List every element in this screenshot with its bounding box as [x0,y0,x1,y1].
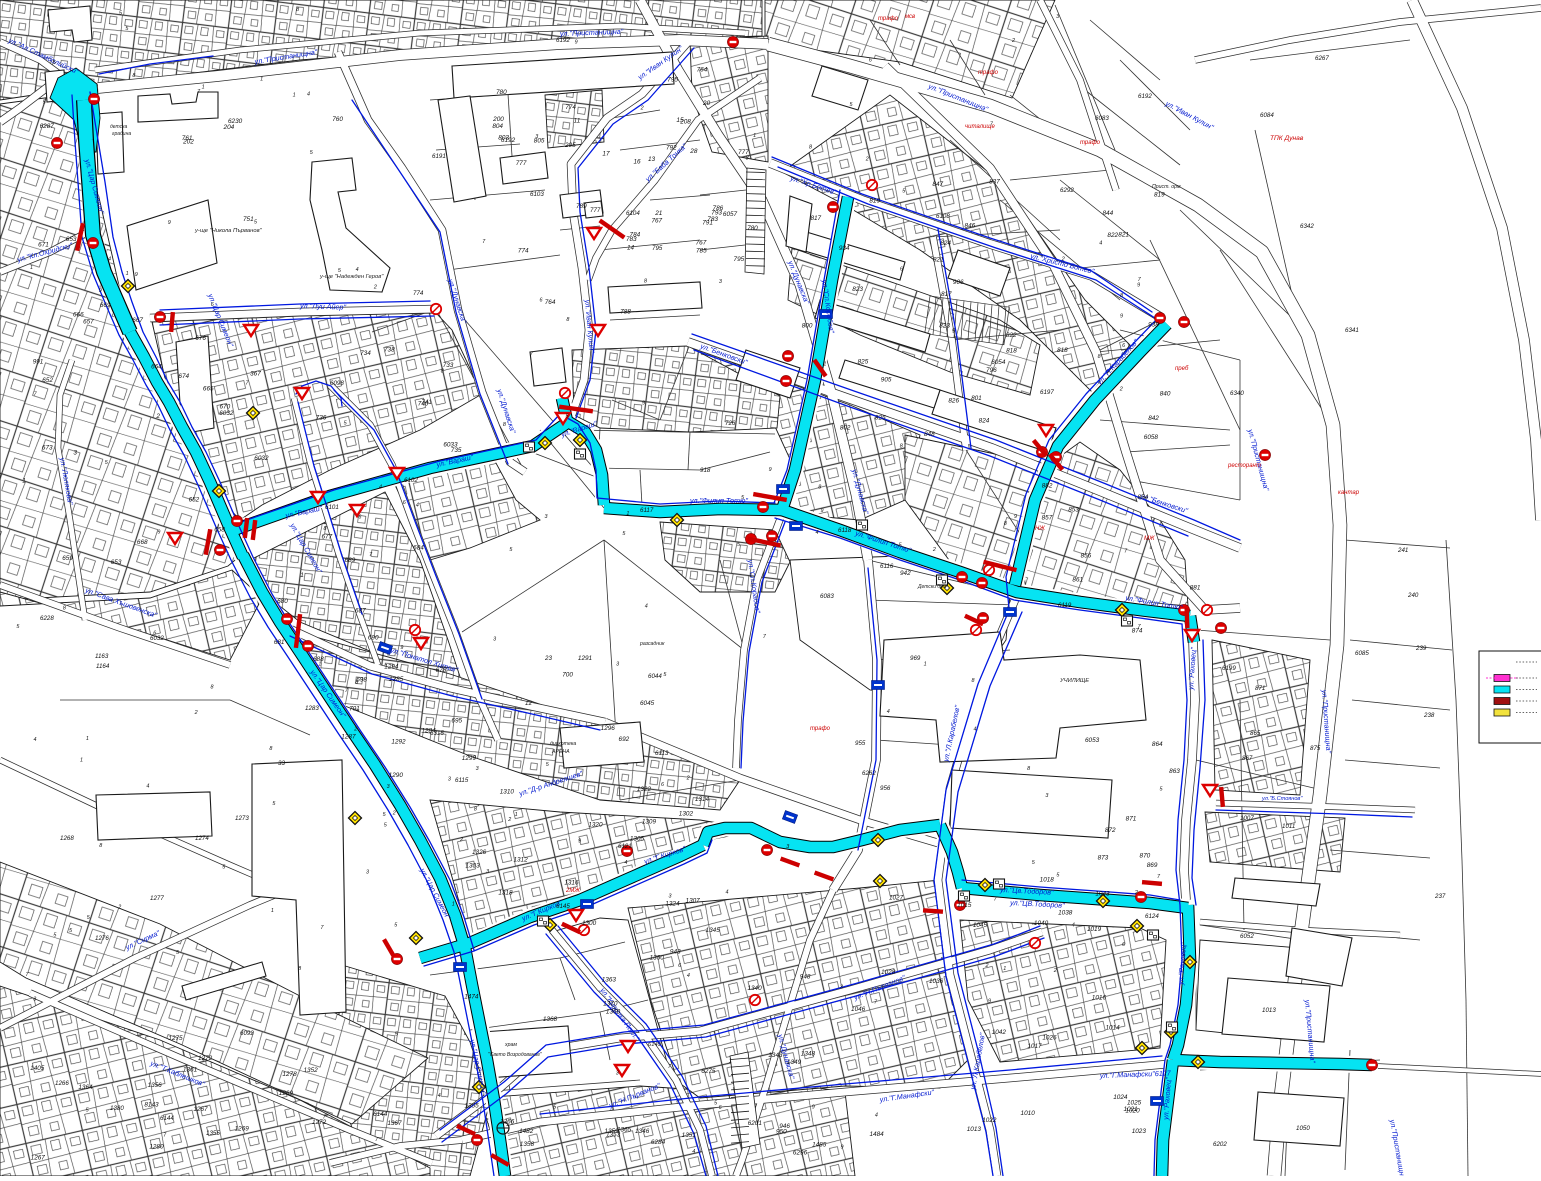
svg-text:938: 938 [1148,321,1159,328]
svg-text:6228: 6228 [40,615,54,622]
svg-text:791: 791 [702,220,713,227]
svg-text:1: 1 [202,84,205,90]
svg-text:ресторант: ресторант [1227,463,1261,469]
svg-text:3: 3 [366,870,369,876]
svg-text:6201: 6201 [748,1120,763,1127]
svg-text:788: 788 [620,308,631,315]
svg-text:823: 823 [852,286,863,293]
svg-text:храм: храм [504,1042,517,1048]
svg-text:733: 733 [443,362,454,369]
svg-text:3: 3 [493,636,496,642]
svg-text:6054: 6054 [991,359,1006,366]
svg-text:6101: 6101 [325,504,339,511]
svg-text:8: 8 [269,746,272,752]
svg-text:678: 678 [436,667,447,674]
svg-text:1045: 1045 [973,922,988,929]
svg-text:3: 3 [448,776,451,782]
svg-text:6144: 6144 [160,1115,174,1122]
svg-text:1318: 1318 [498,889,513,896]
svg-text:882: 882 [1042,483,1053,490]
svg-text:1305: 1305 [630,835,645,842]
svg-text:673: 673 [42,445,53,452]
svg-text:4: 4 [692,1149,695,1155]
svg-text:692: 692 [619,736,630,743]
svg-text:мсв: мсв [905,14,915,20]
svg-text:3: 3 [786,844,789,850]
svg-text:1302: 1302 [679,810,694,817]
svg-text:2: 2 [392,811,396,817]
svg-text:6: 6 [211,302,214,308]
svg-text:6108: 6108 [936,213,950,220]
svg-text:751: 751 [243,216,254,223]
svg-text:УЧИЛИЩЕ: УЧИЛИЩЕ [1059,678,1089,684]
svg-text:857: 857 [1042,515,1053,522]
svg-text:674: 674 [178,373,189,380]
svg-text:1349: 1349 [787,1059,802,1066]
svg-text:1350: 1350 [650,954,665,961]
svg-text:6: 6 [719,1105,722,1111]
svg-text:8: 8 [298,966,301,972]
svg-text:9: 9 [99,288,102,294]
svg-text:6342: 6342 [1300,223,1314,230]
svg-text:653: 653 [111,559,122,566]
svg-text:6117: 6117 [640,507,654,514]
svg-text:4: 4 [379,485,382,491]
svg-text:6275: 6275 [701,1068,716,1075]
svg-text:1027: 1027 [889,895,904,902]
svg-text:1351: 1351 [682,1132,697,1139]
svg-text:734: 734 [360,350,371,357]
svg-text:9: 9 [168,220,171,226]
svg-text:6098: 6098 [330,380,344,387]
svg-text:870: 870 [1140,853,1151,860]
svg-text:1023: 1023 [1132,1128,1147,1135]
svg-text:667: 667 [132,317,143,324]
svg-text:950: 950 [776,1128,787,1135]
svg-text:1017: 1017 [1027,1043,1042,1050]
svg-text:652: 652 [189,497,200,504]
svg-text:6032: 6032 [150,635,164,642]
svg-text:1267: 1267 [31,1155,46,1162]
svg-text:6: 6 [1122,343,1125,349]
svg-text:6092: 6092 [240,1030,254,1037]
svg-text:8: 8 [1027,766,1030,772]
svg-text:774: 774 [518,247,529,254]
svg-text:1296: 1296 [601,725,616,732]
svg-text:824: 824 [979,417,990,424]
svg-text:8: 8 [324,526,327,532]
svg-text:684: 684 [413,544,424,551]
svg-text:664: 664 [151,363,162,370]
svg-text:241: 241 [1397,547,1408,554]
svg-text:1266: 1266 [55,1080,69,1087]
svg-text:1007: 1007 [1240,815,1254,822]
svg-text:817: 817 [941,291,952,298]
svg-text:1324: 1324 [665,901,680,908]
svg-text:1310: 1310 [500,789,515,796]
svg-text:804: 804 [492,123,503,130]
svg-text:2: 2 [507,817,511,823]
svg-text:861: 861 [1072,576,1083,583]
svg-text:1010: 1010 [1021,1110,1036,1117]
svg-text:9: 9 [1014,514,1017,520]
svg-text:1: 1 [749,573,752,579]
svg-text:869: 869 [1147,862,1158,869]
svg-text:2: 2 [1061,256,1065,262]
svg-text:867: 867 [1242,755,1253,762]
svg-text:1: 1 [293,92,296,98]
svg-text:1299: 1299 [462,755,477,762]
svg-text:1364: 1364 [78,1084,93,1091]
svg-text:847: 847 [932,181,943,188]
svg-text:9: 9 [812,1105,815,1111]
svg-text:818: 818 [1006,347,1017,354]
svg-text:4: 4 [108,257,111,263]
svg-text:разсадник: разсадник [639,641,665,647]
svg-text:8: 8 [503,422,506,428]
svg-text:2: 2 [117,904,121,910]
svg-text:1: 1 [626,511,629,517]
svg-text:789: 789 [576,203,587,210]
svg-text:1368: 1368 [543,1016,558,1023]
svg-text:8: 8 [900,443,903,449]
svg-text:854: 854 [1137,494,1148,501]
svg-text:21: 21 [654,210,663,217]
svg-text:6053: 6053 [1085,737,1100,744]
svg-text:ул."Филип Тотю": ул."Филип Тотю" [689,496,748,505]
svg-text:детска: детска [110,124,127,130]
svg-text:6191: 6191 [432,153,446,160]
svg-text:трафо: трафо [978,70,999,76]
svg-text:6033: 6033 [443,441,458,448]
svg-text:12: 12 [525,700,532,707]
svg-text:767: 767 [696,240,707,247]
svg-text:205: 205 [564,142,576,149]
svg-text:1309: 1309 [642,819,657,826]
svg-text:905: 905 [881,377,892,384]
svg-text:792: 792 [666,145,677,152]
svg-text:2: 2 [353,726,357,732]
svg-text:1025: 1025 [1127,1099,1142,1106]
svg-text:237: 237 [1434,893,1446,900]
svg-text:1314: 1314 [695,796,710,803]
svg-text:8143: 8143 [144,1102,159,1109]
svg-text:6113: 6113 [655,750,669,757]
svg-text:1: 1 [271,908,274,914]
svg-text:943: 943 [670,949,681,956]
svg-text:4: 4 [416,502,419,508]
svg-text:28: 28 [689,148,698,155]
svg-text:848: 848 [924,431,935,438]
svg-text:1287: 1287 [341,733,356,740]
svg-text:3: 3 [535,134,538,140]
svg-text:906: 906 [953,279,964,286]
svg-text:871: 871 [1255,685,1265,692]
svg-text:9: 9 [400,645,403,651]
svg-text:1163: 1163 [95,653,109,660]
svg-text:803: 803 [498,134,509,141]
svg-text:1038: 1038 [1058,910,1073,917]
svg-text:6267: 6267 [1315,55,1329,62]
svg-text:2: 2 [155,413,160,420]
svg-text:1: 1 [126,271,129,277]
svg-text:4: 4 [974,727,977,733]
svg-text:1: 1 [729,1058,732,1064]
svg-text:671: 671 [38,241,49,248]
svg-text:6: 6 [153,630,156,636]
svg-text:239: 239 [1415,645,1427,652]
svg-text:1: 1 [1003,966,1006,972]
svg-text:1275: 1275 [168,1035,183,1042]
svg-text:3: 3 [840,984,843,990]
svg-text:9: 9 [769,467,772,473]
svg-text:Детски дом: Детски дом [917,584,947,590]
svg-text:840: 840 [1160,391,1171,398]
svg-text:8: 8 [971,678,974,684]
svg-text:17: 17 [602,151,610,158]
svg-text:1043: 1043 [1095,891,1110,898]
svg-text:4: 4 [1099,240,1102,246]
svg-text:1018: 1018 [1040,876,1055,883]
svg-text:6145: 6145 [556,903,570,910]
svg-text:1380: 1380 [110,1105,124,1112]
svg-text:802: 802 [840,424,851,431]
svg-text:760: 760 [332,116,343,123]
svg-text:825: 825 [875,414,886,421]
svg-text:9: 9 [820,508,823,514]
svg-text:3: 3 [616,662,619,668]
svg-text:657: 657 [83,319,94,326]
svg-text:846: 846 [965,223,976,230]
svg-text:6121: 6121 [618,843,632,850]
svg-text:6052: 6052 [1240,933,1254,940]
svg-text:3: 3 [387,784,390,790]
svg-text:6124: 6124 [1145,913,1159,920]
svg-text:1280: 1280 [149,1144,164,1151]
svg-text:трафо: трафо [1080,140,1101,146]
svg-text:680: 680 [277,598,288,605]
svg-text:1292: 1292 [391,739,406,746]
svg-text:6083: 6083 [820,593,834,600]
svg-text:666: 666 [73,311,84,318]
svg-text:у-ще "Никола Първанов": у-ще "Никола Първанов" [194,228,263,234]
svg-text:8: 8 [818,485,821,491]
svg-text:1011: 1011 [1282,823,1295,830]
svg-text:1: 1 [515,812,518,818]
svg-text:817: 817 [810,215,821,222]
svg-text:АРЕНА: АРЕНА [551,749,570,755]
svg-text:6340: 6340 [1230,390,1244,397]
svg-text:4: 4 [887,709,890,715]
svg-text:956: 956 [880,785,891,792]
svg-text:726: 726 [725,420,736,427]
svg-text:1484: 1484 [869,1131,884,1138]
svg-text:918: 918 [700,467,711,474]
svg-text:942: 942 [900,570,911,577]
svg-text:991: 991 [33,359,44,366]
svg-text:1: 1 [86,736,89,742]
svg-text:1019: 1019 [1087,926,1102,933]
svg-text:2: 2 [194,710,198,716]
svg-text:701: 701 [349,705,360,712]
svg-text:9: 9 [841,1144,844,1150]
svg-text:6296: 6296 [793,1150,808,1157]
svg-text:1345: 1345 [706,927,721,934]
svg-text:1024: 1024 [1113,1094,1128,1101]
svg-text:875: 875 [1310,745,1321,752]
svg-text:3: 3 [476,766,479,772]
svg-text:8: 8 [211,684,214,690]
svg-text:1343: 1343 [768,1052,783,1059]
svg-text:1307: 1307 [686,898,701,905]
svg-text:1014: 1014 [1105,1024,1120,1031]
svg-text:948: 948 [800,973,811,980]
svg-text:1316: 1316 [564,879,579,886]
svg-text:2: 2 [865,157,869,163]
svg-text:6116: 6116 [880,563,894,570]
svg-text:4: 4 [815,530,818,536]
svg-text:НЖ: НЖ [1035,526,1045,532]
svg-text:8: 8 [296,7,299,13]
svg-text:1370: 1370 [603,1001,618,1008]
svg-text:842: 842 [1148,415,1159,422]
svg-text:864: 864 [1152,741,1163,748]
svg-text:736: 736 [316,414,327,421]
svg-text:821: 821 [1118,231,1129,238]
svg-text:1: 1 [452,901,455,907]
svg-text:1272: 1272 [198,1055,213,1062]
svg-text:6341: 6341 [1345,327,1359,334]
svg-text:8: 8 [809,145,812,151]
svg-text:240: 240 [1407,592,1419,599]
svg-text:1269: 1269 [235,1126,250,1133]
svg-text:741: 741 [421,399,432,406]
svg-text:14: 14 [627,245,635,252]
svg-text:690: 690 [368,634,379,641]
svg-text:8: 8 [132,73,135,79]
svg-text:1278: 1278 [282,1071,297,1078]
svg-text:1016: 1016 [1092,995,1107,1002]
svg-text:6: 6 [358,514,361,520]
svg-text:8: 8 [63,606,66,612]
svg-text:6284: 6284 [651,1139,666,1146]
svg-text:1312: 1312 [513,856,528,863]
svg-text:795: 795 [734,256,745,263]
svg-text:8: 8 [474,807,477,813]
svg-text:9: 9 [575,40,578,46]
svg-text:795: 795 [667,76,678,83]
svg-text:1283: 1283 [305,705,319,712]
svg-text:774: 774 [565,104,576,111]
svg-text:6287: 6287 [40,123,55,130]
svg-text:6149: 6149 [648,1042,662,1048]
svg-text:822: 822 [1107,232,1118,239]
svg-text:863: 863 [1169,768,1180,775]
svg-text:3: 3 [33,997,36,1003]
svg-text:4: 4 [356,267,359,273]
svg-text:818: 818 [1057,347,1068,354]
svg-text:6045: 6045 [640,700,655,707]
svg-text:2: 2 [1119,386,1123,392]
svg-text:6197: 6197 [1040,389,1054,396]
svg-text:8: 8 [566,317,569,323]
svg-text:1013: 1013 [1262,1007,1276,1014]
svg-text:1164: 1164 [96,663,110,670]
svg-text:6: 6 [869,57,872,63]
svg-text:1326: 1326 [472,849,487,856]
svg-text:4: 4 [438,1093,441,1099]
svg-text:20: 20 [702,100,711,107]
svg-text:1: 1 [80,758,83,764]
svg-text:3: 3 [486,869,489,875]
svg-text:1273: 1273 [235,815,249,822]
svg-text:1021: 1021 [1124,1106,1139,1113]
svg-text:9: 9 [988,998,991,1004]
svg-text:6: 6 [539,297,542,303]
svg-text:1322: 1322 [637,786,652,793]
svg-text:777: 777 [516,160,527,167]
svg-text:1474: 1474 [464,994,479,1001]
svg-text:865: 865 [1250,730,1261,737]
svg-text:1284: 1284 [421,727,436,734]
svg-text:825: 825 [858,358,869,365]
svg-text:1303: 1303 [465,862,480,869]
svg-text:676: 676 [195,335,206,342]
svg-text:3: 3 [719,279,722,285]
svg-text:2: 2 [1011,38,1015,44]
svg-text:1026: 1026 [1042,1035,1057,1042]
svg-text:1356: 1356 [148,1082,163,1089]
svg-text:700: 700 [562,672,573,679]
svg-text:764: 764 [697,67,708,74]
svg-text:16: 16 [633,159,641,166]
svg-text:2: 2 [1053,968,1057,974]
svg-text:1355: 1355 [206,1130,220,1137]
svg-text:1485: 1485 [812,1142,827,1149]
svg-text:4: 4 [875,1113,878,1119]
svg-text:738: 738 [384,346,395,353]
svg-text:819: 819 [1154,192,1165,199]
svg-text:3: 3 [1045,793,1048,799]
svg-text:1367: 1367 [387,1120,402,1127]
svg-text:9: 9 [578,839,581,845]
svg-text:1291: 1291 [578,655,593,662]
svg-text:15: 15 [676,117,684,124]
svg-text:4: 4 [33,737,36,743]
svg-text:837: 837 [989,179,1000,186]
svg-text:4: 4 [1072,922,1075,928]
svg-text:1028: 1028 [881,969,896,976]
svg-text:3: 3 [545,514,548,520]
svg-text:3: 3 [73,449,77,456]
svg-text:1363: 1363 [602,977,617,984]
svg-text:1352: 1352 [304,1067,319,1074]
svg-text:1277: 1277 [150,895,164,902]
svg-text:1294: 1294 [384,664,399,671]
svg-text:658: 658 [214,526,225,533]
svg-text:1269: 1269 [279,1090,294,1097]
svg-text:1274: 1274 [195,835,209,842]
svg-text:1: 1 [260,77,263,83]
svg-text:Прист. орм: Прист. орм [1152,184,1181,190]
svg-text:8: 8 [746,156,749,162]
svg-text:4: 4 [687,973,690,979]
svg-text:1300: 1300 [582,920,597,927]
svg-text:1361: 1361 [183,1066,198,1073]
svg-text:ТПК Дунав: ТПК Дунав [1270,135,1304,142]
svg-text:821: 821 [933,257,944,264]
svg-text:6032: 6032 [219,410,234,417]
